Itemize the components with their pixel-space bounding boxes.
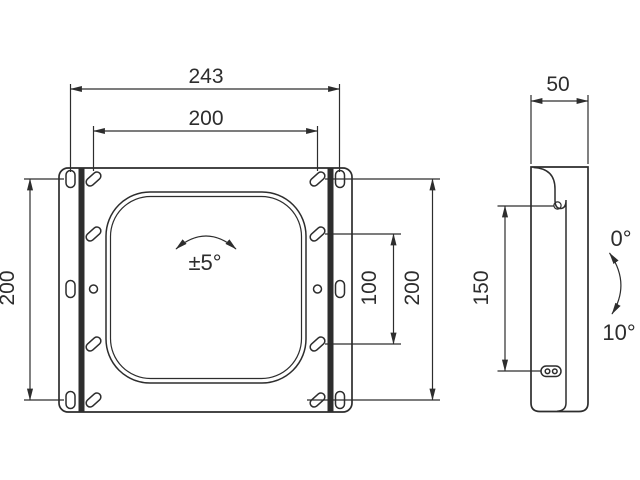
dim-label-right-height: 200 (401, 270, 424, 305)
slot-hole (336, 281, 345, 298)
diagonal-slot (85, 170, 103, 187)
rail-bar-left (79, 168, 85, 412)
screw-hole (553, 369, 558, 374)
dimension-left-height: 200 (0, 179, 64, 400)
front-view: ±5° 243 200 200 100 200 (0, 65, 440, 412)
rotation-range-label: ±5° (188, 250, 221, 275)
tilt-max-label: 10° (602, 320, 635, 345)
dim-label-inner-height: 100 (358, 270, 381, 305)
side-view: 50 150 0° 10° (470, 73, 636, 412)
rotation-arc-arrow (176, 236, 236, 249)
center-opening-inner (111, 197, 302, 379)
dimension-depth: 50 (531, 73, 588, 164)
tilt-arc-arrow (610, 253, 621, 314)
tilt-adjust-slot (541, 366, 561, 377)
front-plate-outline (59, 168, 352, 412)
technical-drawing-page: ±5° 243 200 200 100 200 (0, 0, 640, 480)
tilt-annotation: 0° 10° (602, 226, 635, 345)
dim-label-slot-height: 150 (470, 270, 493, 305)
dim-label-depth: 50 (546, 73, 569, 96)
technical-drawing-canvas: ±5° 243 200 200 100 200 (0, 0, 640, 480)
slot-hole (66, 171, 75, 188)
slot-outline (541, 366, 561, 377)
rail-bar-right (328, 168, 334, 412)
slot-hole (66, 281, 75, 298)
diagonal-slot (309, 170, 327, 187)
pivot-hole (314, 285, 322, 293)
pivot-hole (90, 285, 98, 293)
diagonal-slot (309, 335, 327, 352)
diagonal-slot (85, 335, 103, 352)
diagonal-slot (85, 225, 103, 242)
diagonal-slot (309, 225, 327, 242)
center-opening-outer (106, 192, 306, 383)
diagonal-slot (85, 391, 103, 408)
tilt-min-label: 0° (610, 226, 631, 251)
dim-label-inner-width: 200 (188, 107, 223, 130)
dimension-inner-width: 200 (94, 107, 318, 171)
vesa-slots-right (309, 170, 327, 408)
dim-label-left-height: 200 (0, 270, 19, 305)
wall-slot-holes-right (336, 171, 345, 409)
dimension-slot-height: 150 (470, 206, 554, 371)
vesa-slots-left (85, 170, 103, 408)
wall-slot-holes-left (66, 171, 75, 409)
dimension-inner-height: 100 (325, 234, 401, 344)
screw-hole (545, 369, 550, 374)
slot-hole (66, 392, 75, 409)
dim-label-outer-width: 243 (188, 65, 223, 88)
